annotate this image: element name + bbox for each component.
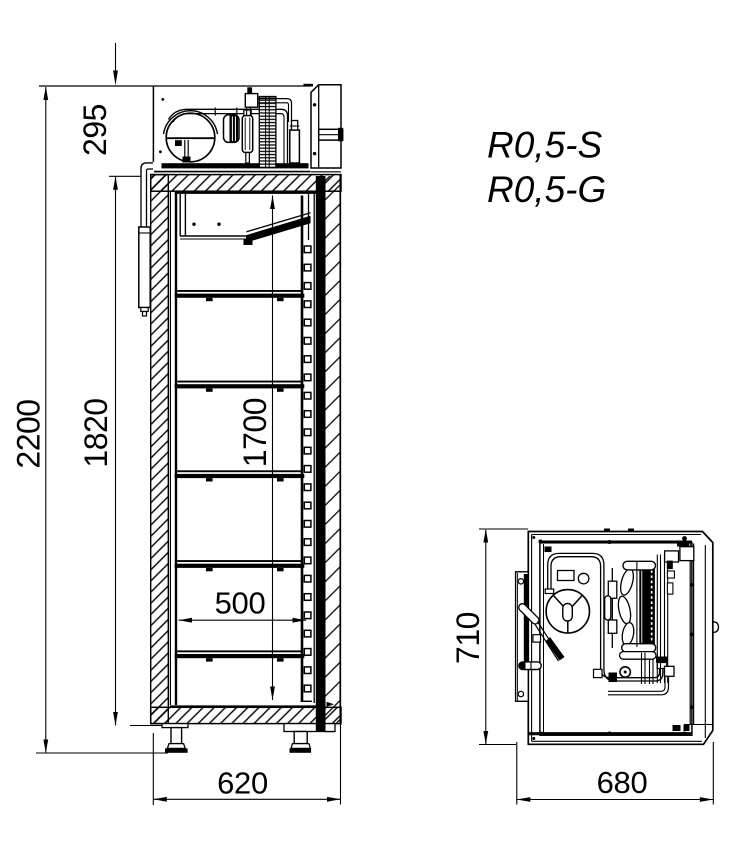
svg-text:620: 620: [217, 765, 268, 800]
svg-text:R0,5-S: R0,5-S: [487, 125, 602, 166]
svg-text:2200: 2200: [11, 399, 47, 468]
svg-text:295: 295: [77, 104, 113, 156]
svg-text:R0,5-G: R0,5-G: [487, 169, 606, 210]
svg-text:680: 680: [597, 765, 648, 800]
svg-text:1700: 1700: [237, 398, 273, 467]
svg-text:500: 500: [215, 586, 266, 621]
svg-text:710: 710: [450, 612, 486, 664]
svg-text:1820: 1820: [78, 398, 114, 467]
